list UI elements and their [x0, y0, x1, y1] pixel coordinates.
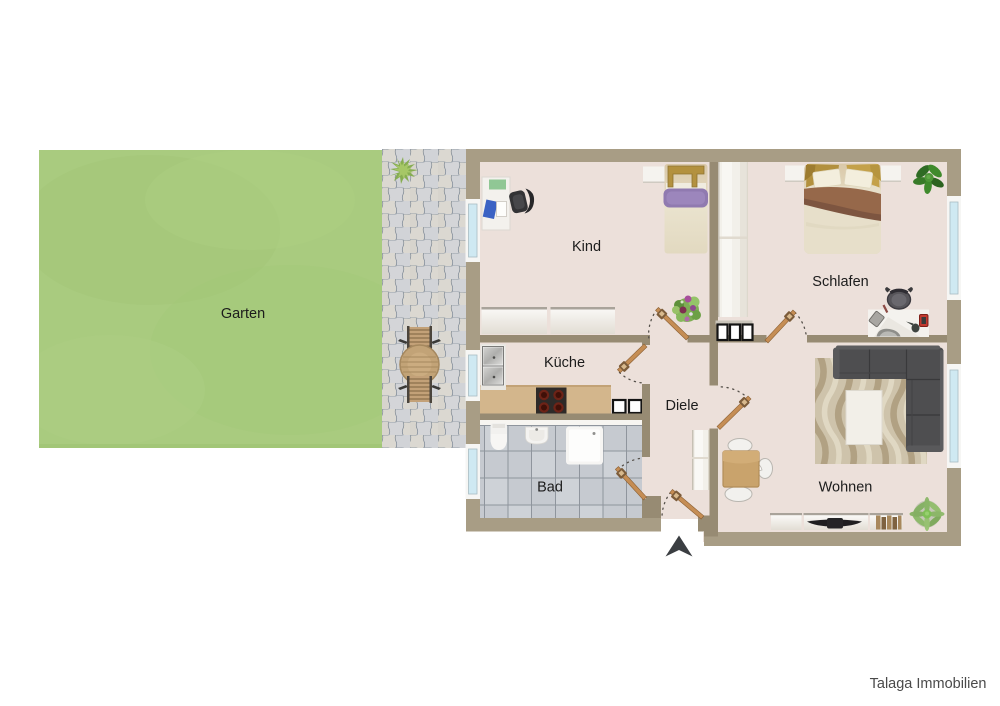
svg-text:Schlafen: Schlafen [812, 274, 868, 290]
svg-text:Bad: Bad [537, 480, 563, 496]
svg-text:Wohnen: Wohnen [819, 480, 873, 496]
svg-text:Garten: Garten [221, 306, 265, 322]
svg-text:Kind: Kind [572, 239, 601, 255]
svg-text:Talaga Immobilien: Talaga Immobilien [870, 676, 987, 692]
svg-text:Küche: Küche [544, 355, 585, 371]
svg-text:Diele: Diele [665, 398, 698, 414]
